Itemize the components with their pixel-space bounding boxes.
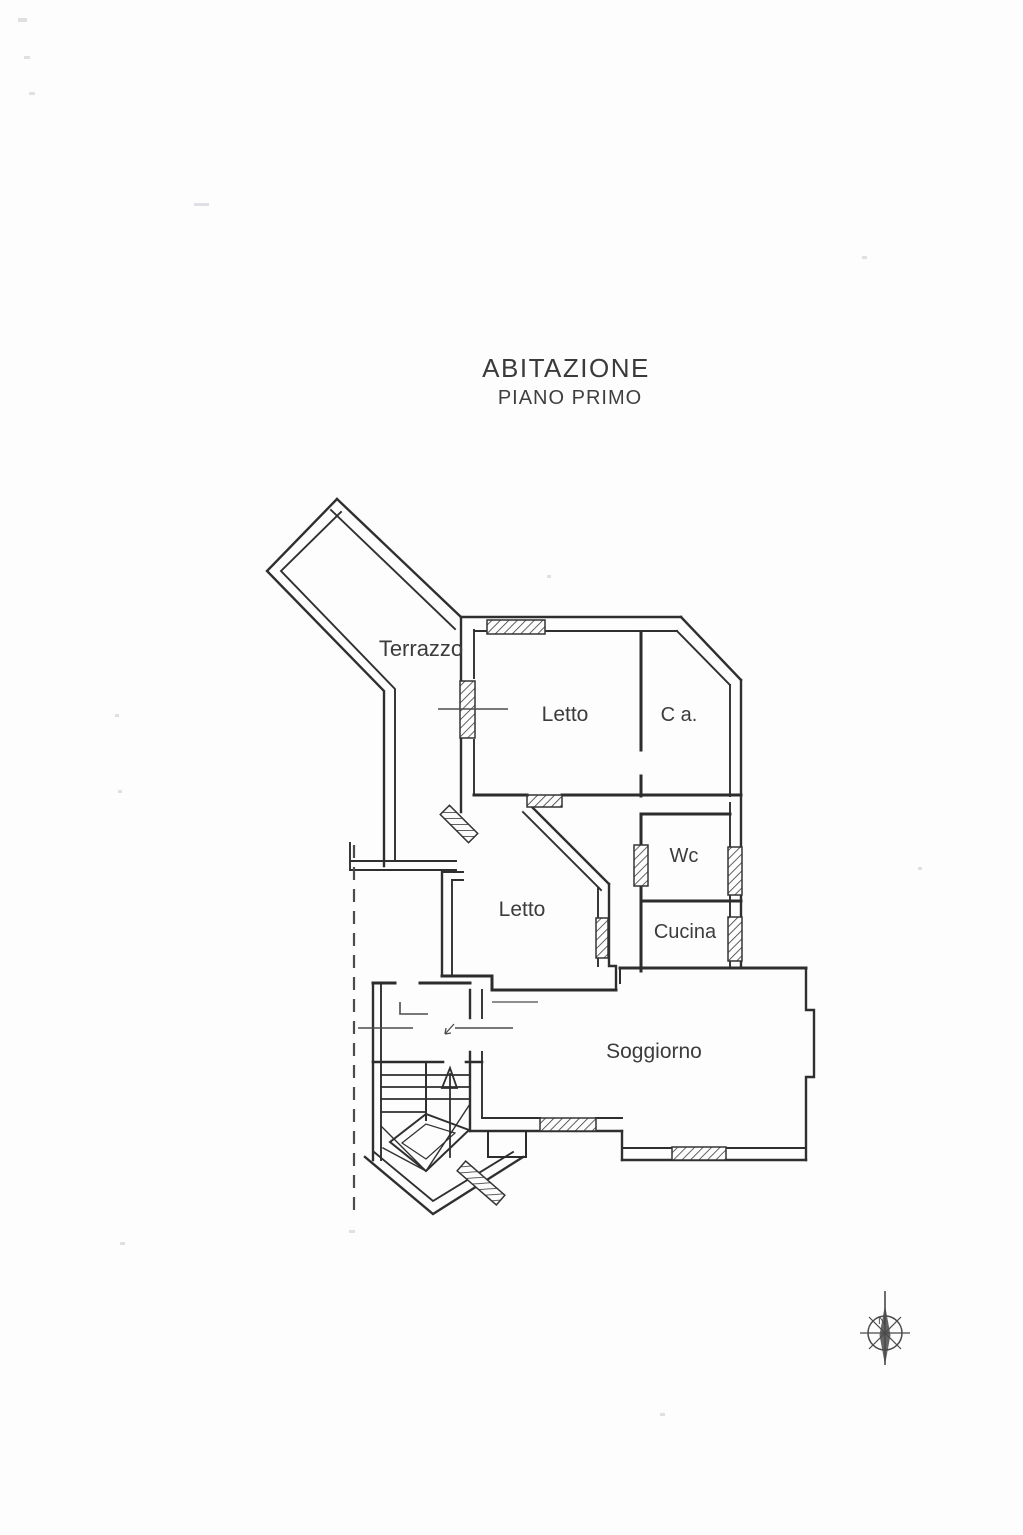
room-label-soggiorno: Soggiorno <box>606 1040 702 1063</box>
room-label-letto-1: Letto <box>542 703 589 726</box>
window-cucina-east <box>728 917 742 961</box>
window-soggiorno-south-left <box>540 1118 596 1131</box>
page-title-block: ABITAZIONE PIANO PRIMO <box>482 353 650 409</box>
small-arrow-mark <box>445 1024 454 1034</box>
window-letto-north <box>487 620 545 634</box>
door-letto-south <box>527 795 562 807</box>
compass-needle <box>880 1305 891 1365</box>
compass-north-label: N <box>878 1315 886 1327</box>
door-mark-hall <box>400 1002 428 1014</box>
window-soggiorno-south <box>672 1147 726 1160</box>
staircase <box>381 1062 470 1171</box>
page-subtitle: PIANO PRIMO <box>498 387 642 409</box>
room-label-cucina: Cucina <box>654 921 717 943</box>
window-wc-east <box>728 847 742 895</box>
door-wc <box>634 845 648 886</box>
window-stair-bay <box>457 1161 505 1205</box>
room-label-letto-2: Letto <box>499 898 546 921</box>
page-title: ABITAZIONE <box>482 353 650 383</box>
floor-plan-svg: ABITAZIONE PIANO PRIMO <box>0 0 1023 1535</box>
compass-rose: N <box>860 1291 910 1365</box>
room-label-wc: Wc <box>670 845 699 867</box>
room-label-ca: C a. <box>661 704 698 726</box>
room-labels: Terrazzo Letto C a. Wc Cucina Letto Sogg… <box>379 636 717 1063</box>
scanned-floorplan-page: ABITAZIONE PIANO PRIMO <box>0 0 1023 1535</box>
door-terrace-corner <box>440 805 477 842</box>
room-label-terrazzo: Terrazzo <box>379 636 463 661</box>
window-letto2-east <box>596 918 608 958</box>
